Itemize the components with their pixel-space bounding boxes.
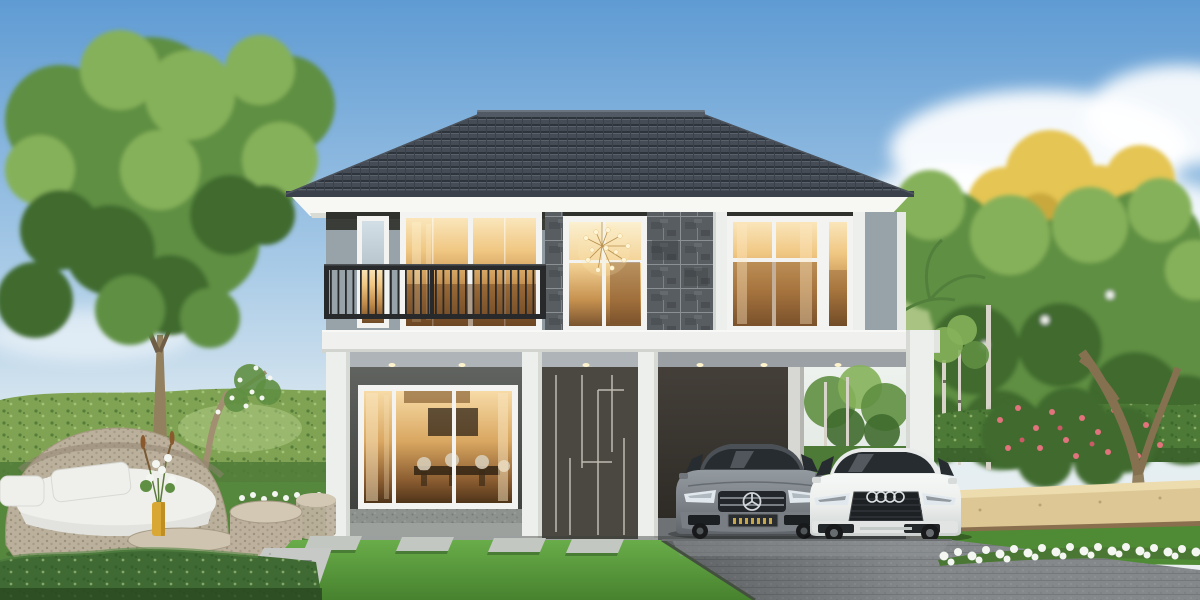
white-flower-row-left-part-part (272, 491, 278, 497)
license-plate-part-part (769, 518, 772, 524)
audi-car-part (812, 477, 821, 483)
stone-bench-part (1099, 501, 1102, 504)
license-plate-part-part (733, 518, 736, 524)
flower-vase-part (140, 480, 152, 492)
magnolia-tree-part (244, 404, 249, 409)
pink-flower-shrub-part-part (1105, 449, 1111, 455)
white-flower-row-left-part-part (239, 495, 245, 501)
white-flower-border-part-part (996, 550, 1005, 559)
floor-slab-part (322, 330, 940, 352)
white-flower-border-part-part (1150, 544, 1158, 552)
white-flower-row-left-part-part (283, 495, 289, 501)
pillow-part (0, 476, 44, 506)
floor-slab (322, 330, 940, 353)
white-flower-border-part-part (1052, 548, 1061, 557)
white-flower-row-left-part-part (250, 492, 256, 498)
pink-flower-shrub-part-part (1063, 437, 1069, 443)
balcony-railing-part (324, 264, 546, 266)
stone-pier-wide-part (684, 268, 708, 286)
white-flower-border-part-part (1094, 543, 1102, 551)
chandelier-part-part (618, 234, 623, 239)
upper-window-narrow-right (823, 216, 853, 332)
stone-bench-part (1159, 497, 1162, 500)
audi-car-part (926, 529, 934, 537)
upper-window-right-part (800, 224, 812, 324)
chandelier-part-part (586, 258, 591, 263)
balcony-railing-part (430, 266, 434, 318)
license-plate-part-part (751, 518, 754, 524)
downlights-part-part (761, 363, 768, 367)
audi-car-part (860, 527, 912, 530)
pink-flower-shrub-part-part (1157, 442, 1163, 448)
white-flower-border-part-part (954, 548, 962, 556)
stone-bench-part (1039, 504, 1042, 507)
white-flower-border-part-part (1004, 556, 1011, 563)
upper-window-narrow-left-part (362, 221, 384, 265)
dining-window (358, 385, 518, 509)
pink-flower-shrub-part-part (1049, 409, 1055, 415)
birch-trees-part (943, 380, 946, 383)
ground-floor-part (346, 352, 350, 540)
white-flower-border-part-part (1010, 545, 1018, 553)
ground-floor-part (654, 352, 658, 538)
chandelier-part-part (604, 246, 609, 251)
pink-flower-shrub-part-part (1037, 445, 1043, 451)
left-tree-part-part (180, 288, 240, 348)
carport-open-view-part (824, 382, 827, 450)
license-plate-part-part (757, 518, 760, 524)
right-trees-part (970, 195, 1050, 275)
chandelier-part-part (584, 236, 589, 241)
carport-part (934, 330, 940, 352)
upper-window-right-part (737, 224, 747, 324)
white-flower-border-part-part (1144, 552, 1151, 559)
dining-window-part (384, 395, 389, 499)
driveway-part (672, 540, 950, 556)
pink-flower-shrub-part-part (1095, 429, 1101, 435)
stepping-stones-part (396, 537, 454, 551)
pink-flower-shrub-part-part (1079, 415, 1085, 421)
carport-open-view-part (864, 414, 900, 450)
pink-flower-shrub-part-part (1058, 426, 1063, 431)
white-flower-border-part-part (1136, 547, 1145, 556)
chandelier-part-part (626, 244, 631, 249)
dining-window-part (452, 391, 456, 503)
white-flower-border-part-part (1080, 547, 1089, 556)
left-tree-part-part (95, 275, 165, 345)
rendering-canvas (0, 0, 1200, 600)
upper-window-right (727, 216, 823, 332)
flower-vase-part (170, 431, 175, 445)
hip-roof-part (477, 110, 705, 112)
mercedes-grille (718, 491, 786, 512)
magnolia-tree-part (224, 388, 248, 412)
stepping-stones-part (487, 552, 540, 555)
license-plate (728, 514, 778, 527)
flower-vase-part-part (152, 460, 160, 468)
white-flower-border-part-part (940, 552, 949, 561)
chandelier-part-part (590, 248, 594, 252)
white-flower-border-part-part (1108, 547, 1117, 556)
dining-window-part-part (421, 470, 427, 486)
chandelier-part-part (594, 230, 599, 235)
white-flower-border-part-part (1088, 552, 1095, 559)
left-tree-part-part (225, 35, 295, 105)
pink-flower-shrub-part-part (1143, 422, 1149, 428)
hip-roof-part (286, 191, 914, 197)
mercedes-grille-part (720, 504, 784, 506)
white-flower-border-part-part (968, 552, 977, 561)
downlights-part-part (835, 363, 842, 367)
left-tree-part-part (120, 130, 200, 210)
flower-vase-part-part (158, 478, 159, 505)
chandelier-part-part (622, 258, 627, 263)
white-flower-border-part-part (1164, 548, 1173, 557)
white-flower-border-part-part (976, 557, 983, 564)
chandelier-part-part (606, 228, 611, 233)
stone-pier-wide (647, 212, 713, 332)
downlights-part-part (697, 363, 704, 367)
stone-pier (545, 212, 563, 332)
right-trees-part (1041, 316, 1049, 324)
stone-bench-part (979, 509, 982, 512)
chandelier-part-part (596, 268, 601, 273)
flower-vase-part (165, 483, 175, 493)
white-flower-border-part-part (1032, 554, 1039, 561)
magnolia-tree-part (260, 396, 265, 401)
white-flower-border-part-part (1038, 544, 1046, 552)
upper-floor-part (897, 212, 906, 332)
white-flower-border-part-part (1066, 543, 1074, 551)
dining-window-part-part (479, 470, 485, 486)
stepping-stones-part (566, 539, 624, 553)
mercedes-car-part (801, 528, 808, 535)
magnolia-tree-part (238, 378, 243, 383)
stepping-stones-part (304, 536, 362, 550)
white-flower-border-part-part (1116, 551, 1123, 558)
audi-grille (849, 492, 923, 521)
license-plate-part-part (739, 518, 742, 524)
mercedes-car-part (679, 473, 688, 479)
pink-flower-shrub-part-part (1005, 445, 1011, 451)
entrance-panel (542, 367, 638, 539)
right-trees-part (1128, 178, 1192, 242)
mercedes-car-part (688, 515, 720, 525)
right-trees-part (1106, 291, 1114, 299)
magnolia-tree-part (254, 366, 259, 371)
white-flower-border-part-part (948, 559, 955, 566)
stone-pier-wide-part (652, 240, 678, 260)
upper-floor-part (713, 212, 716, 332)
magnolia-tree-part (216, 410, 221, 415)
pilaster (853, 212, 865, 332)
white-flower-border-part-part (1060, 553, 1067, 560)
flower-vase-part-part (158, 466, 166, 474)
dining-window-part (366, 393, 378, 501)
carport-open-view-part (846, 377, 849, 453)
dining-window-part-part (475, 455, 489, 469)
flower-vase-part-part (164, 454, 172, 462)
balcony-railing-part (324, 266, 329, 318)
pink-flower-shrub-part-part (1090, 442, 1095, 447)
mercedes-car-part (697, 528, 704, 535)
pink-flower-shrub-part-part (1020, 438, 1025, 443)
birch-trees-part (958, 400, 961, 403)
foreground-hedge-part (0, 588, 322, 600)
audi-car-part (830, 529, 838, 537)
balcony-railing-part (326, 268, 544, 316)
pink-flower-shrub-part-part (997, 417, 1003, 423)
chandelier-part-part (614, 250, 618, 254)
left-tree-part-part (20, 190, 100, 270)
house-exterior-scene (0, 0, 1200, 600)
magnolia-tree-part (268, 376, 273, 381)
white-flower-border-part-part (1024, 549, 1033, 558)
stepping-stones-part (488, 538, 546, 552)
carport-open-view-part (825, 408, 865, 448)
magnolia-tree-part (230, 396, 235, 401)
white-flower-border-part-part (1172, 553, 1179, 560)
pink-flower-shrub-part-part (1074, 436, 1126, 488)
balcony-railing (324, 264, 546, 319)
ground-floor-part (538, 352, 542, 538)
gravel-path-part (269, 553, 271, 555)
dining-window-part (392, 391, 396, 503)
white-flower-border-part-part (982, 546, 990, 554)
chandelier-part-part (610, 266, 615, 271)
pink-flower-shrub-part-part (1073, 453, 1079, 459)
magnolia-tree-part (250, 390, 255, 395)
pink-flower-shrub-part-part (1015, 405, 1021, 411)
dining-window-part (498, 393, 508, 501)
dining-window-part (404, 391, 470, 403)
right-trees-part (1018, 303, 1102, 387)
flower-vase-part (161, 502, 165, 536)
dining-window-part-part (417, 457, 431, 471)
birch-trees-part (961, 341, 989, 369)
license-plate-part-part (763, 518, 766, 524)
upper-window-narrow-right-part (829, 270, 847, 326)
pink-flower-shrub-part-part (1033, 425, 1039, 431)
license-plate-part-part (745, 518, 748, 524)
balcony-railing-part (541, 266, 546, 318)
white-flower-border-part-part (1122, 543, 1130, 551)
floor-slab-part (322, 330, 940, 332)
rattan-side-tables-part (296, 493, 336, 507)
magnolia-tree-part (255, 379, 281, 405)
stepping-stones-part (565, 553, 618, 556)
left-tree-part-part (0, 262, 73, 338)
birch-trees-part (947, 315, 977, 345)
rattan-side-tables-part (230, 501, 302, 523)
chandelier-window (563, 216, 647, 332)
balcony-railing-part (324, 314, 546, 319)
audi-car-part (948, 478, 957, 484)
upper-floor (324, 212, 906, 332)
white-flower-border-part-part (1178, 545, 1186, 553)
flower-vase-part-part (168, 476, 176, 484)
right-trees-part (1052, 187, 1128, 263)
left-tree-part-part (145, 50, 235, 140)
stepping-stones-part (395, 551, 448, 554)
flower-vase-part (141, 435, 146, 449)
